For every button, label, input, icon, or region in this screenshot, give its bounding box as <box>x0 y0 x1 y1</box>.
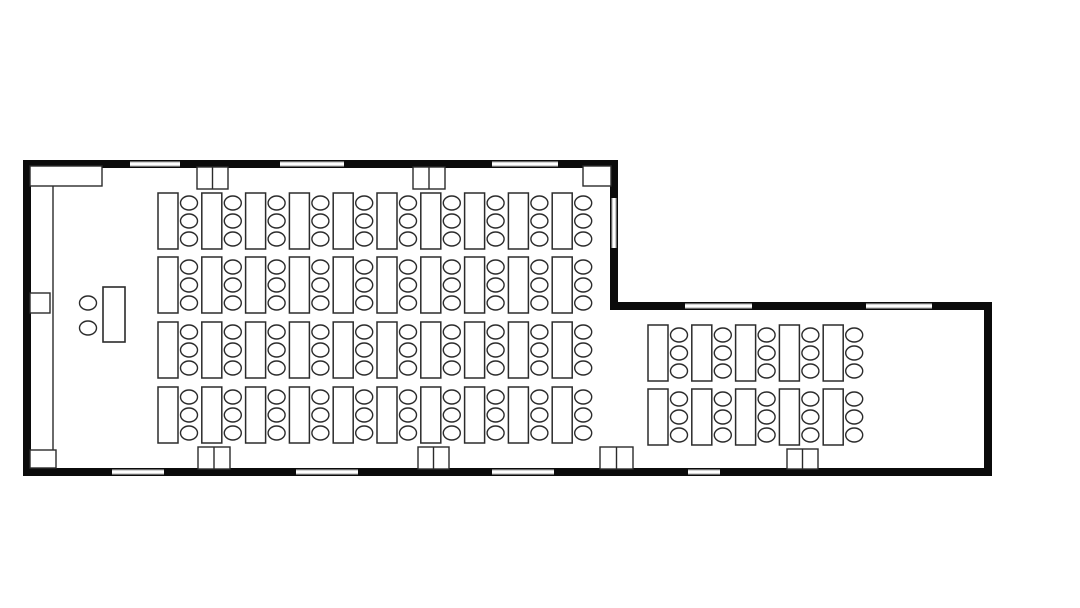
student-chair <box>224 278 241 292</box>
student-chair <box>312 260 329 274</box>
student-chair <box>802 410 819 424</box>
wall-top-extension <box>610 302 992 310</box>
student-chair <box>268 214 285 228</box>
student-chair <box>181 260 198 274</box>
closet <box>30 166 102 186</box>
student-chair <box>575 343 592 357</box>
student-chair <box>443 408 460 422</box>
student-chair <box>714 364 731 378</box>
student-chair <box>846 364 863 378</box>
student-desk <box>246 387 266 443</box>
student-desk <box>158 387 178 443</box>
student-chair <box>181 361 198 375</box>
student-chair <box>531 260 548 274</box>
student-chair <box>312 426 329 440</box>
corner-cabinet <box>583 166 611 186</box>
student-chair <box>671 410 688 424</box>
student-chair <box>443 426 460 440</box>
student-chair <box>181 214 198 228</box>
student-chair <box>181 196 198 210</box>
student-chair <box>758 364 775 378</box>
student-desk <box>158 257 178 313</box>
student-desk <box>779 389 799 445</box>
student-chair <box>575 232 592 246</box>
student-chair <box>356 214 373 228</box>
student-chair <box>802 428 819 442</box>
student-chair <box>400 214 417 228</box>
student-chair <box>312 408 329 422</box>
student-desk <box>377 257 397 313</box>
student-desk <box>465 322 485 378</box>
corner-box <box>30 450 56 468</box>
student-desk <box>421 193 441 249</box>
student-chair <box>487 426 504 440</box>
student-chair <box>487 296 504 310</box>
student-desk <box>508 322 528 378</box>
student-chair <box>312 325 329 339</box>
student-chair <box>400 361 417 375</box>
student-desk <box>333 322 353 378</box>
student-chair <box>487 361 504 375</box>
student-chair <box>443 214 460 228</box>
wall-left <box>23 160 31 476</box>
student-chair <box>443 260 460 274</box>
student-desk <box>377 193 397 249</box>
wall-right-extension <box>984 302 992 476</box>
student-chair <box>487 278 504 292</box>
student-desk <box>421 387 441 443</box>
student-chair <box>268 278 285 292</box>
student-chair <box>846 410 863 424</box>
student-chair <box>181 390 198 404</box>
student-chair <box>671 428 688 442</box>
student-chair <box>443 325 460 339</box>
student-chair <box>356 296 373 310</box>
student-chair <box>224 214 241 228</box>
student-chair <box>487 325 504 339</box>
teacher-desk <box>103 287 125 342</box>
student-chair <box>181 408 198 422</box>
student-desk <box>552 257 572 313</box>
student-chair <box>312 278 329 292</box>
teacher-chair <box>80 321 97 335</box>
student-chair <box>758 410 775 424</box>
student-chair <box>356 278 373 292</box>
student-chair <box>312 196 329 210</box>
student-chair <box>224 260 241 274</box>
student-chair <box>356 361 373 375</box>
student-desk <box>202 193 222 249</box>
student-chair <box>531 278 548 292</box>
student-desk <box>333 193 353 249</box>
student-chair <box>846 346 863 360</box>
student-chair <box>312 214 329 228</box>
student-desk <box>246 193 266 249</box>
student-chair <box>400 426 417 440</box>
student-desk <box>736 325 756 381</box>
student-chair <box>443 278 460 292</box>
student-chair <box>268 361 285 375</box>
student-chair <box>714 428 731 442</box>
student-chair <box>758 346 775 360</box>
student-chair <box>400 196 417 210</box>
student-chair <box>224 343 241 357</box>
student-desk <box>692 389 712 445</box>
student-chair <box>802 328 819 342</box>
student-chair <box>531 296 548 310</box>
student-chair <box>356 232 373 246</box>
student-desk <box>246 322 266 378</box>
student-desk <box>736 389 756 445</box>
student-chair <box>400 278 417 292</box>
student-chair <box>356 408 373 422</box>
student-chair <box>531 343 548 357</box>
student-chair <box>531 390 548 404</box>
student-chair <box>400 390 417 404</box>
student-chair <box>268 232 285 246</box>
student-chair <box>312 296 329 310</box>
student-desk <box>648 389 668 445</box>
student-desk <box>289 257 309 313</box>
student-chair <box>181 426 198 440</box>
floor-plan-canvas <box>0 0 1080 608</box>
student-chair <box>400 296 417 310</box>
student-chair <box>268 296 285 310</box>
student-chair <box>575 296 592 310</box>
student-chair <box>224 426 241 440</box>
student-chair <box>443 232 460 246</box>
student-chair <box>224 196 241 210</box>
student-chair <box>443 343 460 357</box>
student-desk <box>508 387 528 443</box>
student-chair <box>531 232 548 246</box>
student-chair <box>714 346 731 360</box>
student-chair <box>312 343 329 357</box>
student-desk <box>289 387 309 443</box>
student-chair <box>487 408 504 422</box>
student-chair <box>487 214 504 228</box>
student-desk <box>421 257 441 313</box>
student-chair <box>575 260 592 274</box>
student-chair <box>714 410 731 424</box>
student-chair <box>671 328 688 342</box>
student-desk <box>202 387 222 443</box>
student-chair <box>224 232 241 246</box>
student-chair <box>356 325 373 339</box>
student-desk <box>289 322 309 378</box>
student-chair <box>846 328 863 342</box>
student-desk <box>333 387 353 443</box>
student-chair <box>575 196 592 210</box>
student-chair <box>356 343 373 357</box>
student-chair <box>268 426 285 440</box>
student-desk <box>552 387 572 443</box>
student-chair <box>714 328 731 342</box>
student-chair <box>531 361 548 375</box>
student-chair <box>400 343 417 357</box>
student-chair <box>312 361 329 375</box>
student-desk <box>465 257 485 313</box>
student-chair <box>268 343 285 357</box>
student-chair <box>531 325 548 339</box>
student-chair <box>575 390 592 404</box>
student-chair <box>312 390 329 404</box>
student-chair <box>356 390 373 404</box>
student-desk <box>823 325 843 381</box>
student-desk <box>377 387 397 443</box>
student-chair <box>181 278 198 292</box>
student-chair <box>802 346 819 360</box>
student-desk <box>779 325 799 381</box>
student-chair <box>443 196 460 210</box>
student-desk <box>465 387 485 443</box>
student-desk <box>465 193 485 249</box>
student-chair <box>487 260 504 274</box>
student-chair <box>671 392 688 406</box>
student-chair <box>575 325 592 339</box>
student-desk <box>552 193 572 249</box>
student-desk <box>421 322 441 378</box>
student-chair <box>531 196 548 210</box>
student-chair <box>356 426 373 440</box>
student-chair <box>443 390 460 404</box>
student-chair <box>181 296 198 310</box>
student-desk <box>202 322 222 378</box>
student-chair <box>224 361 241 375</box>
student-chair <box>224 296 241 310</box>
student-chair <box>846 392 863 406</box>
floor-plan <box>0 0 1080 608</box>
student-chair <box>443 361 460 375</box>
student-chair <box>224 390 241 404</box>
student-chair <box>181 343 198 357</box>
student-desk <box>246 257 266 313</box>
student-chair <box>312 232 329 246</box>
student-chair <box>846 428 863 442</box>
student-desk <box>333 257 353 313</box>
teacher-chair <box>80 296 97 310</box>
student-chair <box>802 364 819 378</box>
student-chair <box>575 408 592 422</box>
student-chair <box>487 343 504 357</box>
student-desk <box>823 389 843 445</box>
student-chair <box>224 325 241 339</box>
student-chair <box>575 278 592 292</box>
student-desk <box>552 322 572 378</box>
student-chair <box>400 408 417 422</box>
student-chair <box>758 428 775 442</box>
student-chair <box>181 232 198 246</box>
student-chair <box>531 408 548 422</box>
student-desk <box>692 325 712 381</box>
student-chair <box>268 260 285 274</box>
radiator <box>30 293 50 313</box>
student-chair <box>268 390 285 404</box>
student-chair <box>487 390 504 404</box>
student-chair <box>802 392 819 406</box>
student-desk <box>289 193 309 249</box>
student-chair <box>268 196 285 210</box>
student-chair <box>443 296 460 310</box>
student-desk <box>158 193 178 249</box>
student-chair <box>714 392 731 406</box>
student-chair <box>400 232 417 246</box>
student-chair <box>400 325 417 339</box>
student-desk <box>508 257 528 313</box>
student-chair <box>224 408 241 422</box>
student-chair <box>671 364 688 378</box>
student-chair <box>400 260 417 274</box>
student-chair <box>356 196 373 210</box>
student-desk <box>202 257 222 313</box>
student-chair <box>268 408 285 422</box>
student-chair <box>758 392 775 406</box>
student-chair <box>181 325 198 339</box>
student-desk <box>508 193 528 249</box>
student-desk <box>158 322 178 378</box>
student-chair <box>671 346 688 360</box>
student-chair <box>356 260 373 274</box>
student-chair <box>758 328 775 342</box>
student-chair <box>575 426 592 440</box>
student-chair <box>487 196 504 210</box>
student-desk <box>648 325 668 381</box>
student-chair <box>268 325 285 339</box>
student-desk <box>377 322 397 378</box>
student-chair <box>531 214 548 228</box>
student-chair <box>531 426 548 440</box>
student-chair <box>487 232 504 246</box>
student-chair <box>575 214 592 228</box>
student-chair <box>575 361 592 375</box>
